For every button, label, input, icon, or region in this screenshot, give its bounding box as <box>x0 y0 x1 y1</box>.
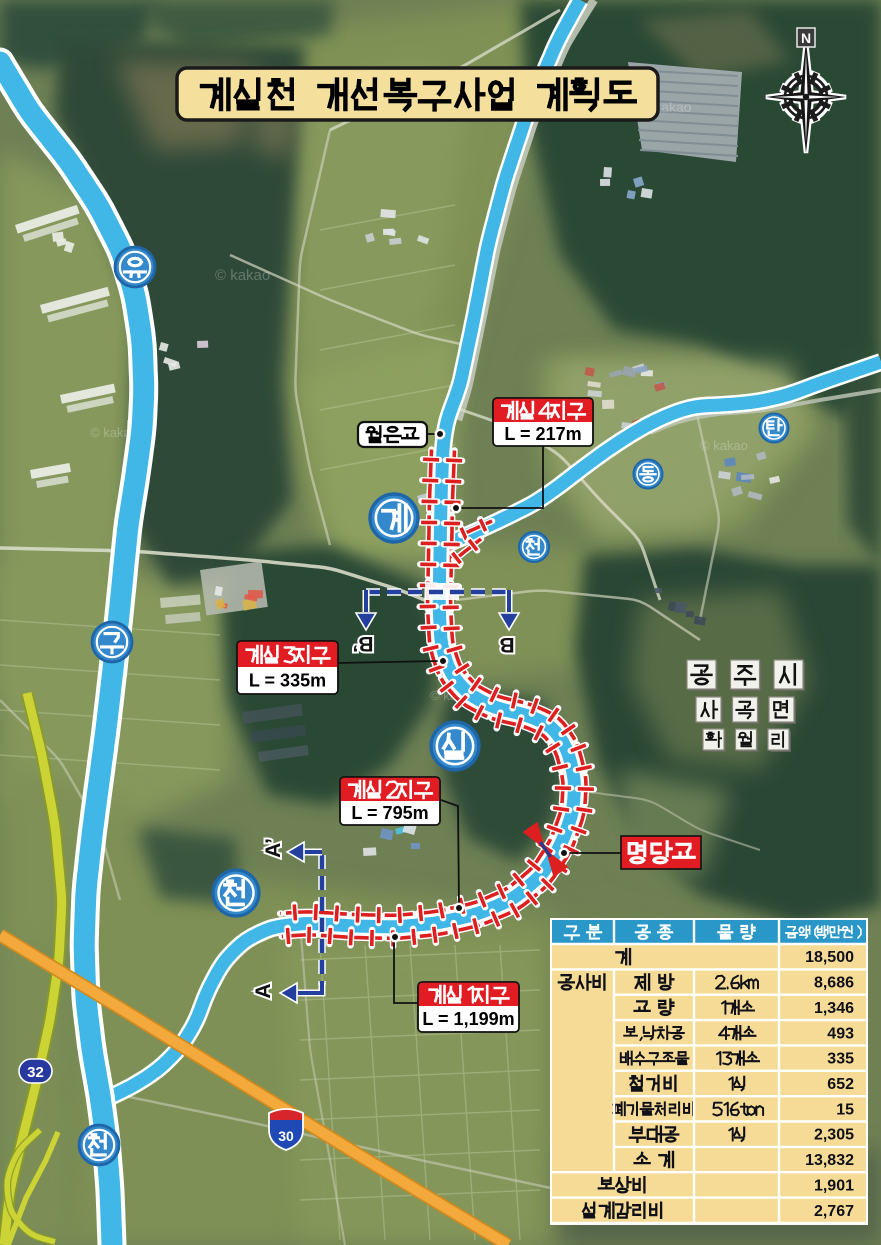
svg-text:A’: A’ <box>262 838 285 858</box>
svg-text:1,901: 1,901 <box>814 1177 854 1194</box>
svg-text:B: B <box>499 633 514 656</box>
svg-text:652: 652 <box>827 1076 854 1093</box>
svg-text:A: A <box>252 983 275 998</box>
svg-text:L = 1,199m: L = 1,199m <box>422 1009 514 1029</box>
svg-text:B’: B’ <box>353 632 374 655</box>
svg-text:© kakao: © kakao <box>215 267 270 284</box>
svg-text:L = 217m: L = 217m <box>504 424 581 444</box>
svg-text:18,500: 18,500 <box>805 949 854 966</box>
svg-text:30: 30 <box>278 1128 294 1144</box>
svg-text:2,767: 2,767 <box>814 1203 854 1220</box>
svg-text:1,346: 1,346 <box>814 1000 854 1017</box>
svg-text:335: 335 <box>827 1051 854 1068</box>
svg-text:32: 32 <box>27 1064 44 1081</box>
svg-text:N: N <box>801 30 811 46</box>
svg-text:13,832: 13,832 <box>805 1152 854 1169</box>
svg-text:© kakao: © kakao <box>700 438 748 453</box>
svg-text:L = 335m: L = 335m <box>249 671 326 691</box>
svg-text:493: 493 <box>827 1025 854 1042</box>
svg-text:L = 795m: L = 795m <box>351 803 428 823</box>
svg-text:2,305: 2,305 <box>814 1127 854 1144</box>
svg-text:15: 15 <box>836 1101 854 1118</box>
svg-text:8,686: 8,686 <box>814 975 854 992</box>
